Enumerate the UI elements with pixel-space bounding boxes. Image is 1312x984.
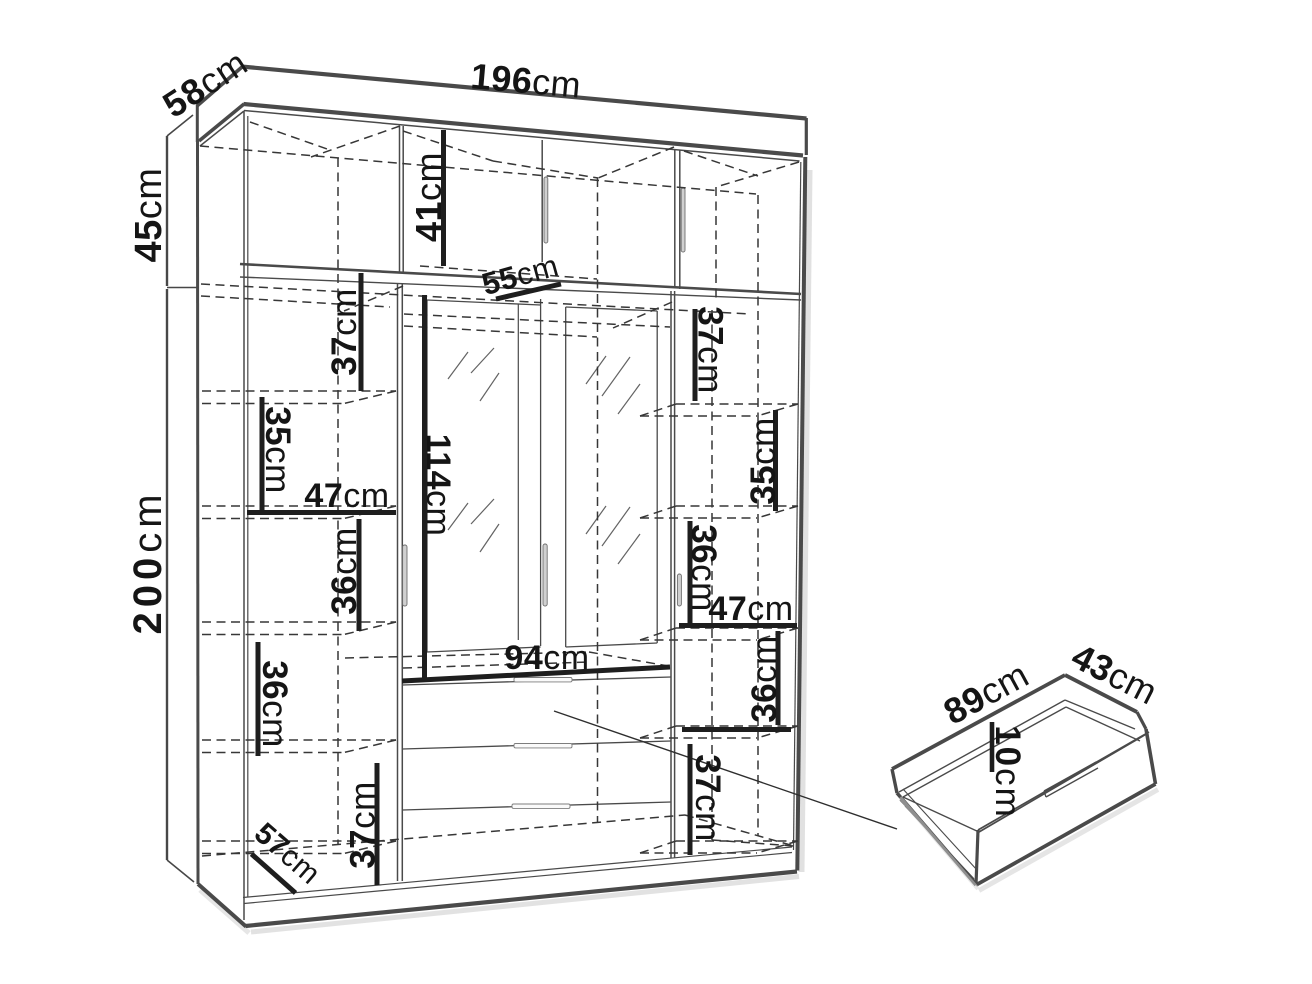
svg-text:36cm: 36cm — [325, 527, 364, 615]
svg-text:35cm: 35cm — [258, 406, 297, 494]
svg-text:36cm: 36cm — [255, 660, 294, 748]
svg-text:37cm: 37cm — [344, 781, 383, 869]
svg-text:41cm: 41cm — [408, 152, 449, 242]
svg-text:114cm: 114cm — [419, 434, 457, 537]
svg-text:47cm: 47cm — [708, 590, 793, 628]
svg-text:36cm: 36cm — [745, 635, 784, 723]
svg-text:45cm: 45cm — [128, 168, 170, 263]
svg-text:37cm: 37cm — [688, 754, 727, 842]
svg-text:10cm: 10cm — [988, 725, 1027, 819]
svg-text:37cm: 37cm — [325, 288, 364, 376]
svg-text:47cm: 47cm — [304, 477, 389, 515]
svg-text:35cm: 35cm — [744, 417, 783, 505]
svg-text:94cm: 94cm — [504, 639, 589, 677]
svg-text:37cm: 37cm — [691, 306, 730, 394]
svg-text:200cm: 200cm — [126, 489, 170, 634]
